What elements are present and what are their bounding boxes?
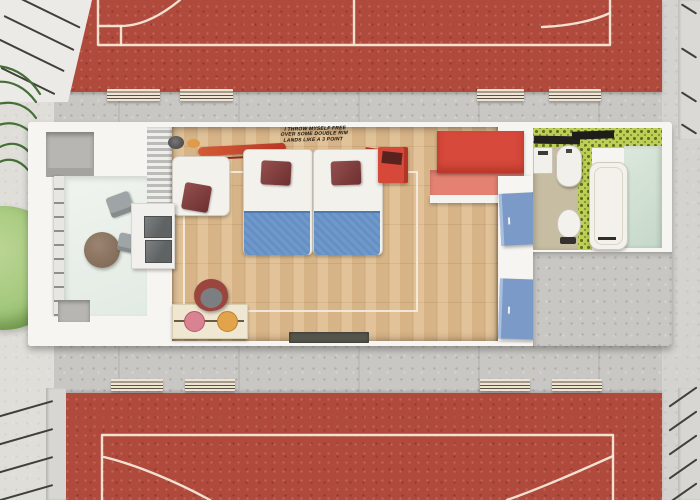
bathtub <box>589 162 628 250</box>
door-handle <box>508 217 510 224</box>
heater-valve <box>566 149 572 153</box>
floor-plan-render: I THROW MYSELF FREE OVER SOME DOUBLE RIM… <box>0 0 700 500</box>
balcony-table <box>84 232 120 268</box>
shower-screen <box>572 130 614 139</box>
bathroom-glass-panel <box>624 146 662 248</box>
toilet-bowl <box>557 209 581 238</box>
armchair-cushion <box>181 182 212 213</box>
door-handle <box>508 307 510 314</box>
blanket-blue <box>314 211 380 255</box>
desk-chair-seat <box>199 287 224 310</box>
blanket-blue <box>244 211 310 255</box>
top-court-lines <box>48 0 662 92</box>
desk-dot-orange <box>217 311 238 332</box>
fence-post-bottom-left <box>46 388 66 500</box>
water-heater <box>556 145 582 187</box>
twin-bed-left <box>243 149 313 255</box>
bench <box>480 379 530 391</box>
bench <box>549 89 601 101</box>
glass-shelf-unit <box>131 203 175 269</box>
balcony-railing <box>54 176 64 316</box>
blue-door-bathroom <box>499 192 538 246</box>
wardrobe-red-top <box>437 131 524 173</box>
fence-post-top-right <box>678 0 700 140</box>
bathtub-basin <box>594 167 623 245</box>
pillow <box>331 160 362 185</box>
glass-panel <box>144 216 172 238</box>
toilet <box>555 209 581 247</box>
bench <box>477 89 524 101</box>
bench <box>111 379 163 391</box>
pillow <box>260 160 291 186</box>
bowl-decor <box>168 136 184 149</box>
entry-porch-pavement <box>533 252 672 346</box>
bench <box>180 89 233 101</box>
armchair <box>172 156 230 216</box>
bench <box>552 379 602 391</box>
bathroom-sink <box>533 147 553 174</box>
bottom-court-lines <box>52 393 662 500</box>
desk-dot-pink <box>184 311 205 332</box>
orange-decor <box>187 139 200 148</box>
balcony-step <box>58 300 90 322</box>
doormat <box>289 332 369 343</box>
twin-bed-right <box>313 149 383 255</box>
books-on-cabinet <box>381 151 402 165</box>
toilet-base <box>560 237 576 244</box>
glass-panel <box>145 240 172 263</box>
bench <box>107 89 160 101</box>
sink-faucet <box>538 151 548 155</box>
bench <box>185 379 235 391</box>
bathtub-faucet <box>598 237 616 240</box>
